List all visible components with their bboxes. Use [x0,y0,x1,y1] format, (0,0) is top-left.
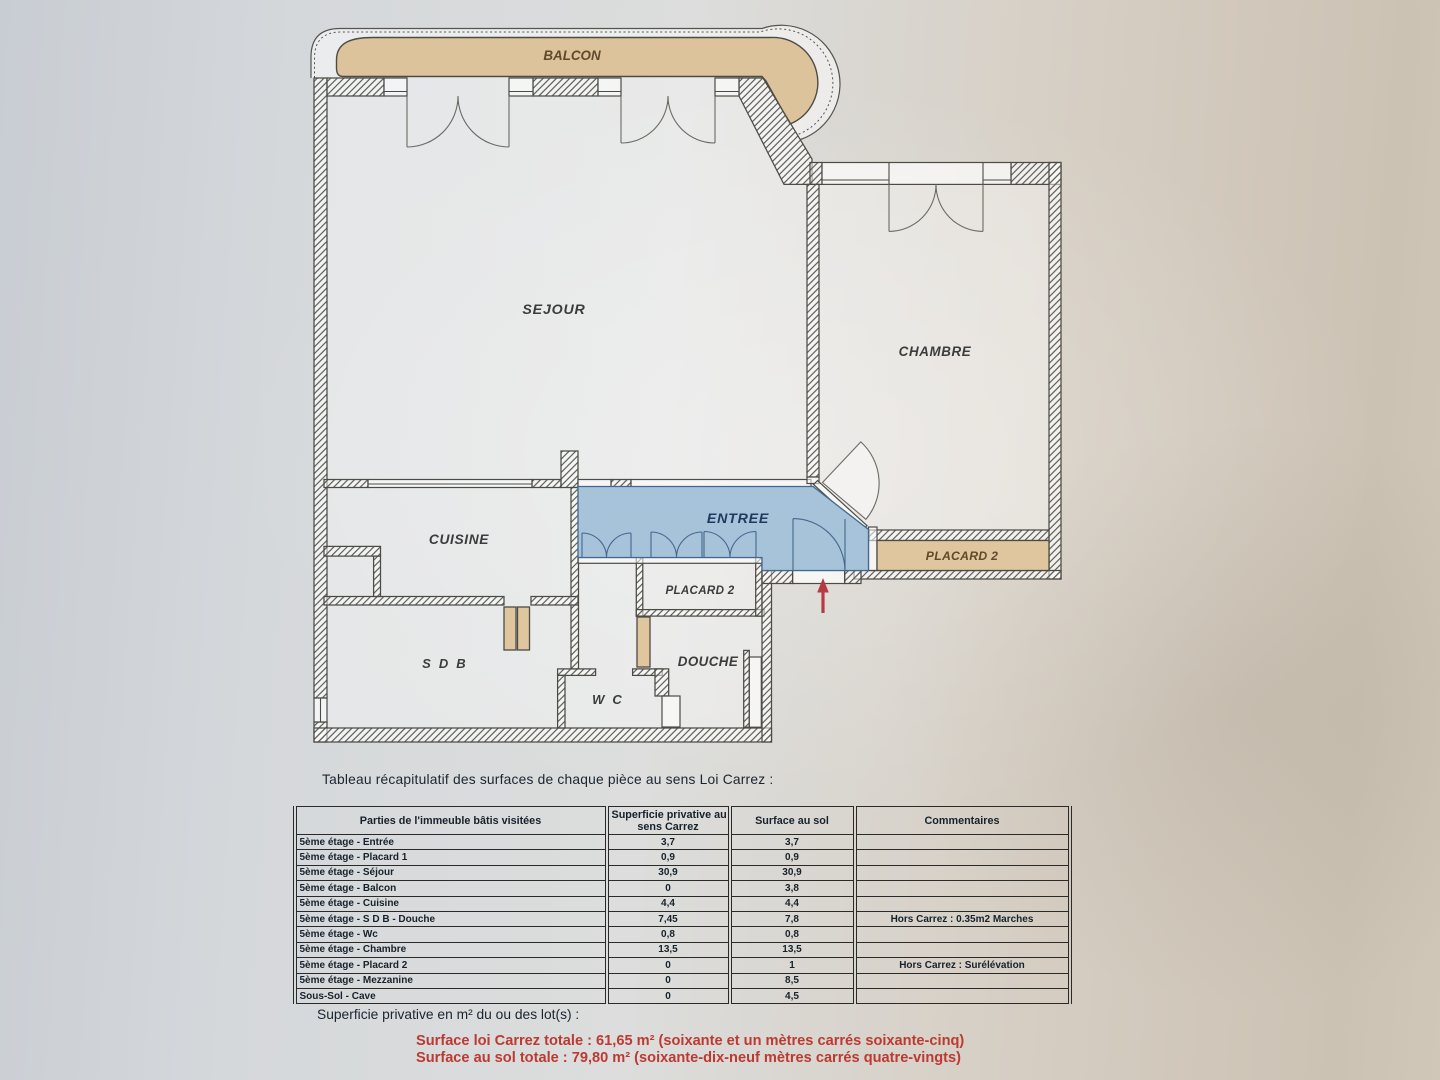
svg-text:PLACARD 2: PLACARD 2 [665,584,734,597]
svg-text:CUISINE: CUISINE [429,532,489,547]
svg-text:CHAMBRE: CHAMBRE [899,344,972,359]
svg-text:ENTREE: ENTREE [707,511,769,527]
svg-text:S D B: S D B [422,656,468,671]
svg-text:SEJOUR: SEJOUR [522,302,585,318]
svg-text:DOUCHE: DOUCHE [678,654,739,669]
svg-text:W C: W C [592,692,624,707]
svg-text:PLACARD 2: PLACARD 2 [926,549,998,563]
svg-text:BALCON: BALCON [543,48,601,63]
